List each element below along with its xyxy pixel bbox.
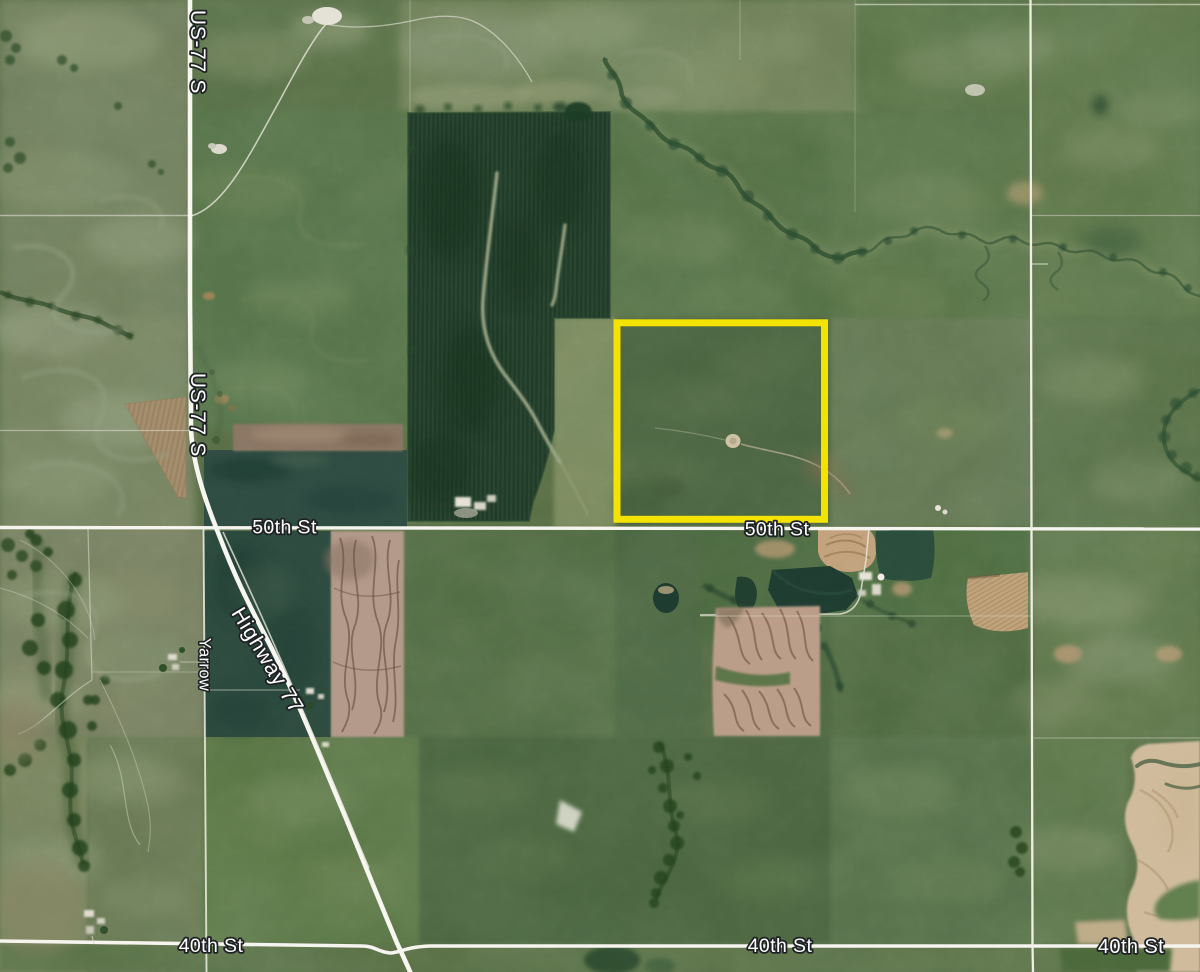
- svg-text:40th St: 40th St: [179, 935, 244, 957]
- svg-text:50th St: 50th St: [252, 517, 317, 539]
- svg-text:Yarrow: Yarrow: [196, 638, 214, 691]
- svg-text:50th St: 50th St: [745, 519, 810, 541]
- svg-text:US-77 S: US-77 S: [186, 10, 209, 94]
- svg-text:US-77 S: US-77 S: [186, 373, 209, 457]
- svg-text:40th St: 40th St: [748, 935, 813, 957]
- svg-text:40th St: 40th St: [1098, 936, 1164, 958]
